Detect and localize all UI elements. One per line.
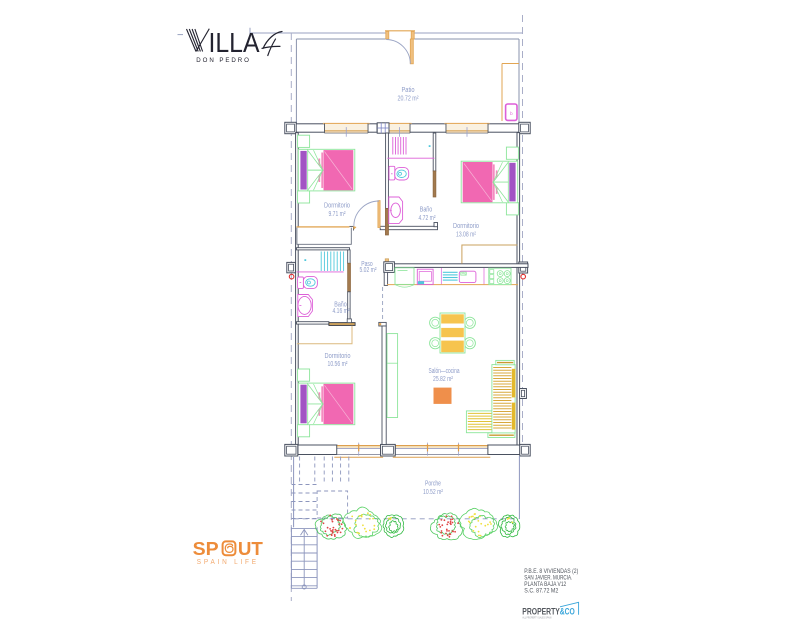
svg-text:10.56 m²: 10.56 m²	[328, 361, 348, 368]
svg-text:S.C. 87.72 M2: S.C. 87.72 M2	[524, 587, 558, 594]
svg-text:Patio: Patio	[402, 87, 415, 94]
svg-text:5.02 m²: 5.02 m²	[360, 267, 377, 274]
svg-text:20.72 m²: 20.72 m²	[398, 96, 420, 103]
svg-text:25.82 m²: 25.82 m²	[433, 376, 453, 383]
svg-text:SPAIN LIFE: SPAIN LIFE	[197, 559, 259, 566]
svg-text:Dormitorio: Dormitorio	[324, 203, 350, 210]
svg-text:DON PEDRO: DON PEDRO	[196, 57, 251, 64]
svg-text:4.16 m²: 4.16 m²	[333, 308, 350, 315]
svg-text:Porche: Porche	[425, 481, 441, 488]
svg-text:Dormitorio: Dormitorio	[453, 223, 479, 230]
svg-text:10.52 m²: 10.52 m²	[423, 489, 443, 496]
svg-text:13.08 m²: 13.08 m²	[456, 232, 476, 239]
svg-text:4.72 m²: 4.72 m²	[419, 215, 436, 222]
svg-text:UT: UT	[238, 539, 263, 559]
svg-text:ILLA: ILLA	[209, 27, 261, 58]
svg-text:Baño: Baño	[420, 207, 433, 214]
svg-text:SP: SP	[193, 539, 219, 559]
svg-text:Salón—cocina: Salón—cocina	[429, 368, 460, 375]
svg-text:ALL PROPERTY SALES SPAIN: ALL PROPERTY SALES SPAIN	[522, 615, 551, 619]
svg-text:9.71 m²: 9.71 m²	[329, 211, 346, 218]
svg-text:Dormitorio: Dormitorio	[325, 353, 351, 360]
svg-text:&CO: &CO	[560, 607, 575, 617]
